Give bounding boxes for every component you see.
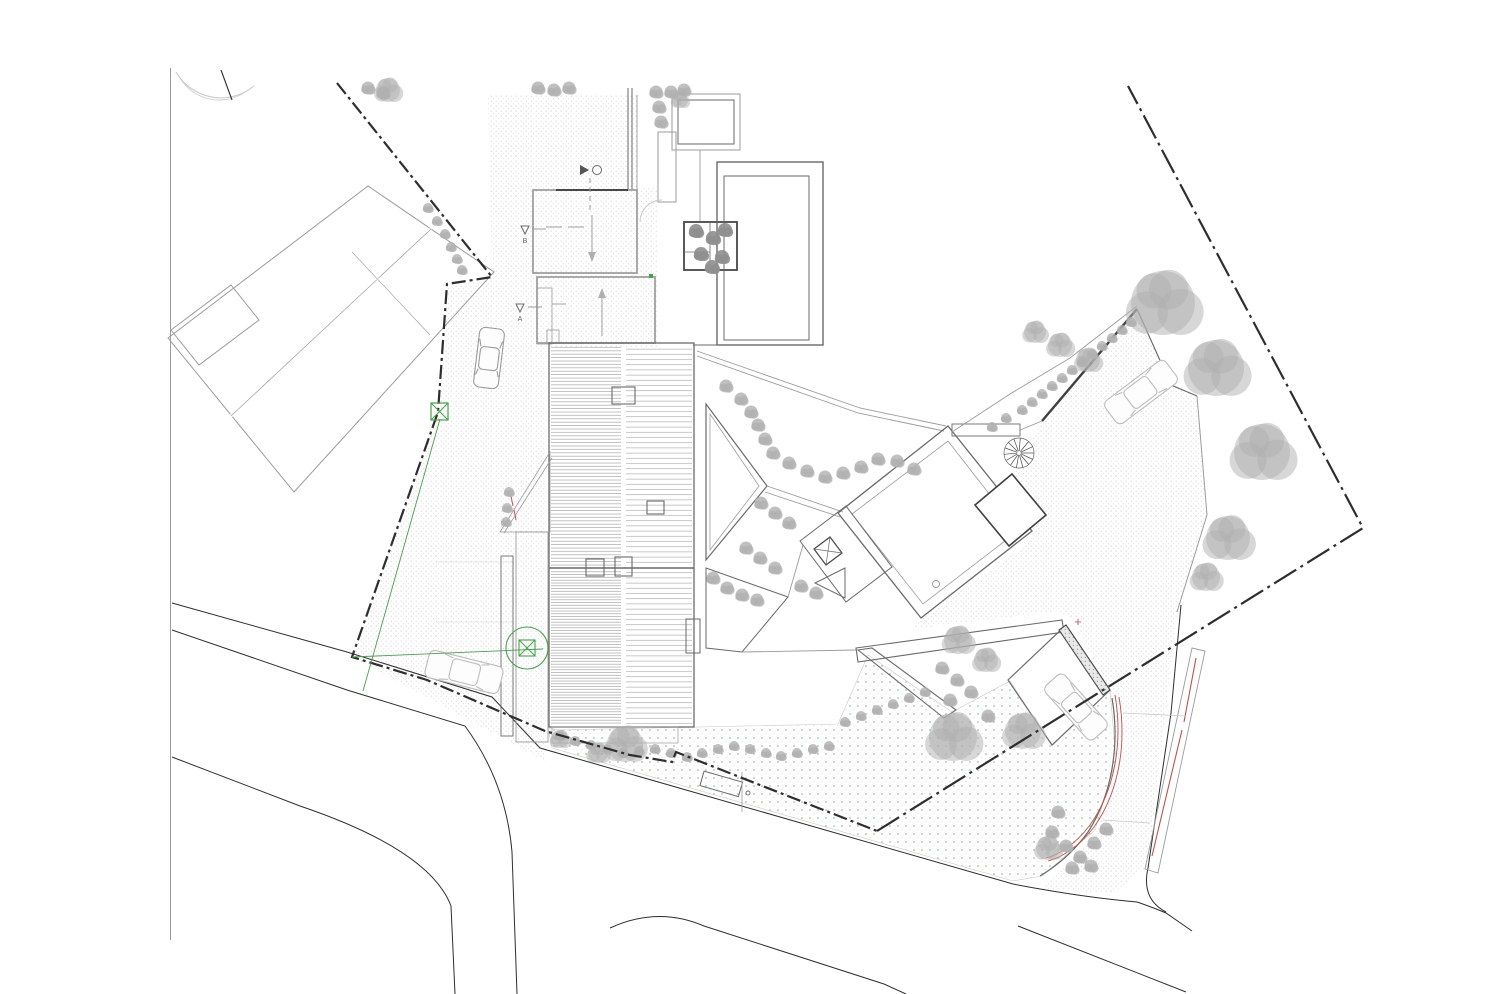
tree-canopy [1230,423,1298,480]
shrub [758,433,772,446]
green-utility-point [649,274,653,278]
shrub [423,203,434,213]
shrub [854,461,868,474]
shrub [664,86,678,99]
shrub [950,674,964,687]
shrub [809,587,823,600]
shrub [1057,373,1068,383]
section-label-b: B [523,238,528,245]
shrub [800,465,814,478]
shrub [964,686,978,699]
shrub [935,662,949,675]
shrub [432,216,443,226]
shrub [706,572,720,585]
shrub [720,582,734,595]
tree-canopy [1126,270,1204,335]
tree-canopy [1190,562,1224,591]
shrub [750,594,764,607]
shrub [734,393,748,406]
shrub [871,453,885,466]
section-label-a: A [518,316,523,323]
roof-deck-lower [549,557,700,743]
shrub [754,497,768,510]
shrub [744,406,758,419]
shrub [677,84,691,97]
roof-vent [933,581,940,588]
shrub [768,562,782,575]
shrub [782,517,796,530]
shrub [1047,381,1058,391]
shrub [361,82,375,95]
shrub [751,419,765,432]
shrub [719,380,733,393]
roof-deck-upper [549,343,694,568]
shrub [735,589,749,602]
shrub [987,422,998,432]
site-plan-drawing: B A [0,0,1500,994]
shrub [766,447,780,460]
shrub [1087,349,1098,359]
tree-canopy [1046,333,1075,357]
shrub [440,229,451,239]
neighbor-roof-notch [171,285,259,365]
shrub [562,82,576,95]
garden-paths [697,351,946,652]
site-plan-canvas: B A [0,0,1500,994]
shrub [782,457,796,470]
north-arc-symbol [176,70,254,100]
main-house-roof [547,330,700,743]
shrub [1027,397,1038,407]
shrub [753,552,767,565]
shrub [794,580,808,593]
tree-canopy [1202,515,1255,560]
shrub [531,82,545,95]
red-wall-segment [1184,658,1196,722]
shrub [446,242,457,252]
tree-canopy [942,625,976,654]
shrub [654,116,668,129]
shrub [649,86,663,99]
shrub [920,687,931,697]
shrub [907,463,921,476]
shrub [1037,389,1048,399]
shrub [836,467,850,480]
shrub [452,254,463,264]
shrub [1001,413,1012,423]
tree-canopy [972,648,1001,672]
tree-canopy [1022,321,1049,343]
shrub [818,471,832,484]
shrub [1097,341,1108,351]
shrub [547,84,561,97]
shrub [943,694,957,707]
entry-stair-block [658,132,676,202]
shrub [457,265,468,275]
tree-canopy [1184,339,1252,396]
shrub [768,507,782,520]
spiral-stair [1004,438,1034,468]
shrub [890,455,904,468]
shrub [739,542,753,555]
shrub [1017,405,1028,415]
shrub [652,101,666,114]
